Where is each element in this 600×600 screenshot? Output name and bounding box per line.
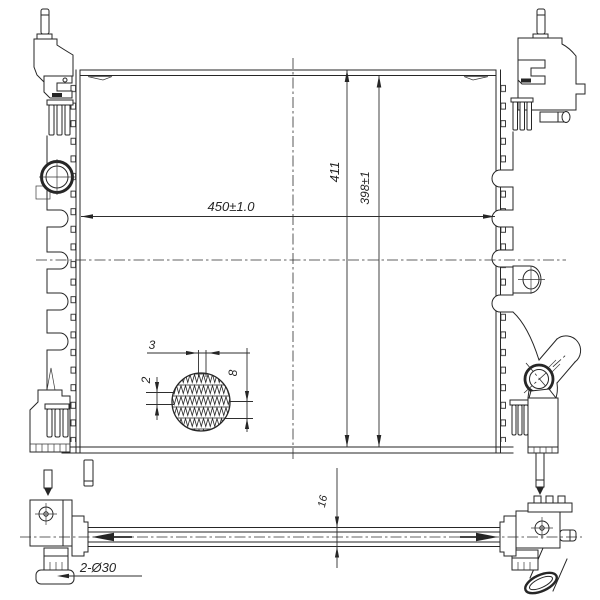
tank-lobe xyxy=(47,333,68,350)
plan-view: 16 2-Ø30 xyxy=(20,468,582,597)
drain-stub xyxy=(84,460,93,486)
pin-diameter-note: 2-Ø30 xyxy=(57,560,142,578)
dimension-core-thickness: 16 xyxy=(316,468,339,568)
bar-connector xyxy=(72,516,88,556)
tank-lobe xyxy=(492,250,513,267)
mounting-pin xyxy=(44,470,52,488)
tank-lobe xyxy=(47,252,68,269)
front-view: 450±1.0 411 398±1 3 xyxy=(30,9,585,496)
dim-core-height-label: 398±1 xyxy=(358,171,372,204)
filler-neck xyxy=(39,159,75,195)
bottom-right-bracket xyxy=(510,389,558,495)
tank-lobe xyxy=(492,210,513,227)
dim-fin-pitch-label: 3 xyxy=(149,338,156,352)
mounting-pin xyxy=(537,9,545,34)
dim-fin-depth-label: 8 xyxy=(226,369,240,376)
mounting-pin xyxy=(536,453,544,487)
technical-drawing-canvas: 450±1.0 411 398±1 3 xyxy=(0,0,600,600)
side-stub xyxy=(560,530,576,541)
drain-plug xyxy=(513,266,545,294)
tank-lobe xyxy=(492,170,513,187)
tank-lobe xyxy=(47,293,68,310)
top-right-bracket xyxy=(511,9,585,130)
outlet-pipe xyxy=(513,312,581,398)
left-serrated-edge xyxy=(71,80,77,442)
radiator-core xyxy=(62,70,513,453)
bracket-block xyxy=(30,500,72,546)
tank-lobe xyxy=(47,210,68,227)
dim-width-label: 450±1.0 xyxy=(208,199,256,214)
mounting-pin xyxy=(41,9,49,34)
dim-overall-height-label: 411 xyxy=(327,162,342,183)
overflow-nipple xyxy=(540,112,570,123)
plan-right-bracket xyxy=(500,496,576,597)
dim-core-thickness-label: 16 xyxy=(316,493,330,508)
left-tank xyxy=(36,136,75,390)
top-left-bracket xyxy=(34,9,73,135)
dim-fin-height-label: 2 xyxy=(139,376,153,384)
pin-diameter-label: 2-Ø30 xyxy=(79,560,117,575)
bar-connector xyxy=(500,516,516,556)
tank-lobe xyxy=(492,295,513,312)
radiator-drawing: 450±1.0 411 398±1 3 xyxy=(0,0,600,600)
outlet-opening-plan xyxy=(522,569,560,598)
